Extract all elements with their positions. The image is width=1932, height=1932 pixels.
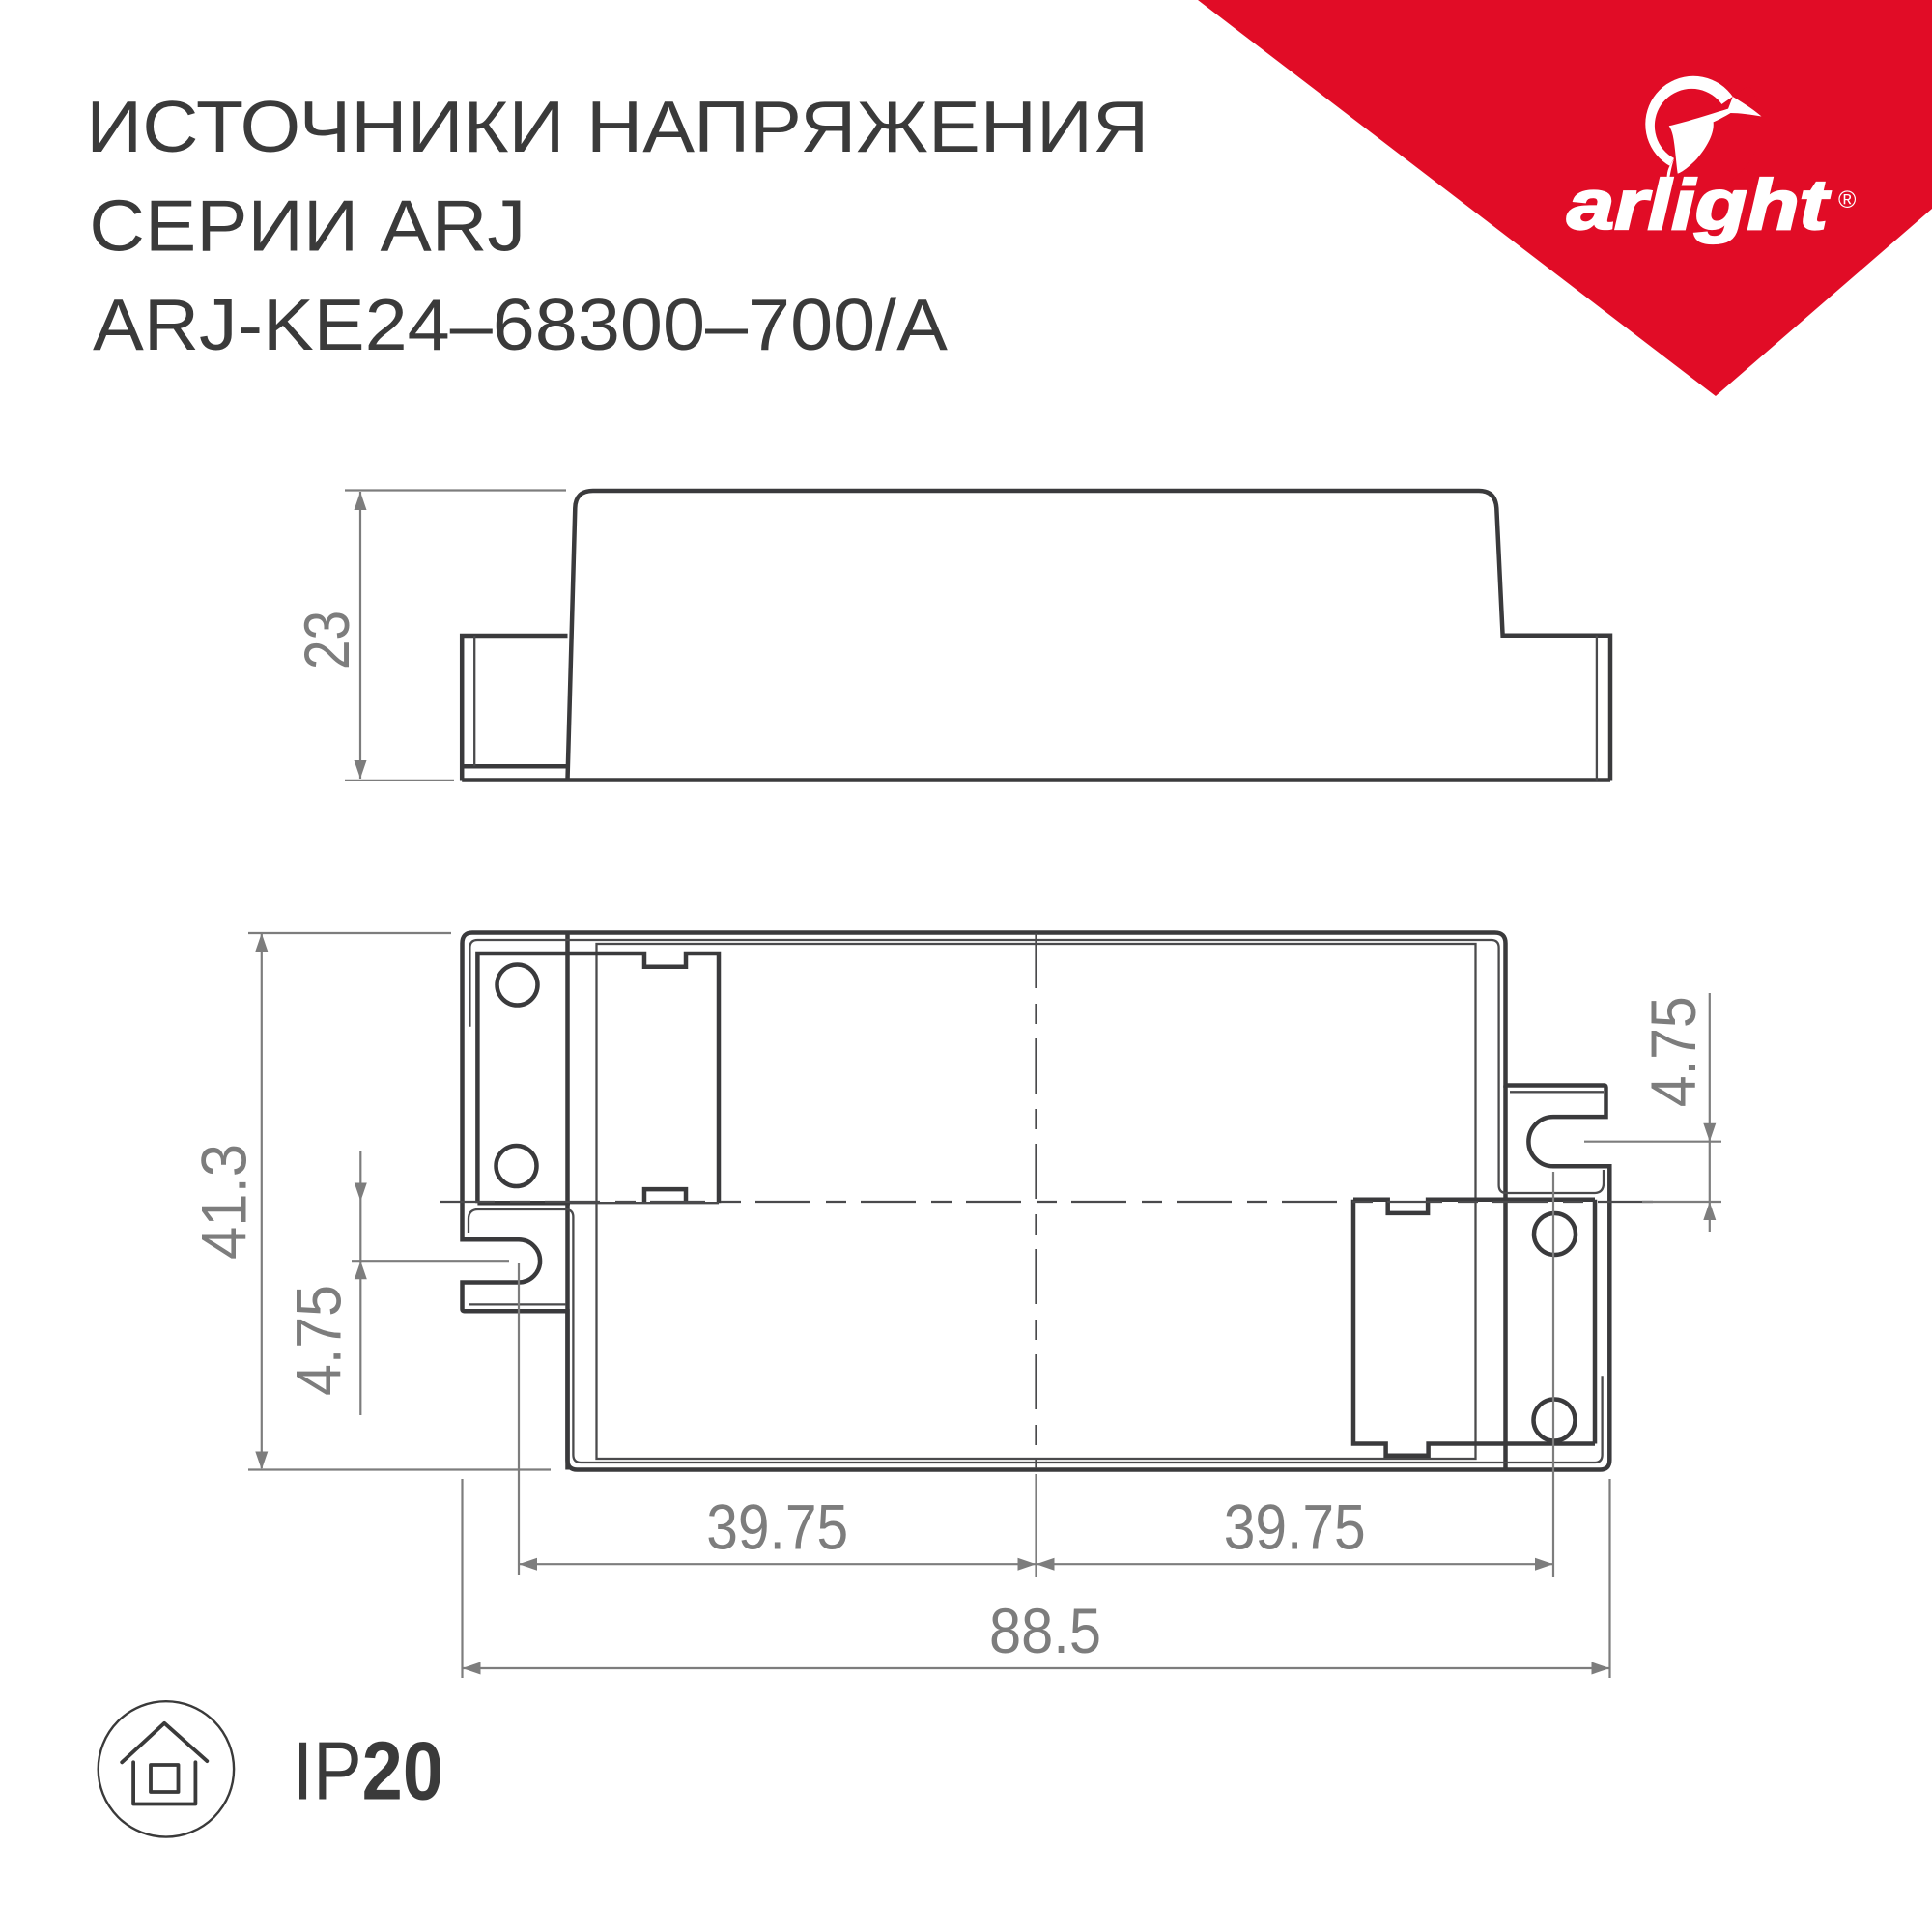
svg-text:88.5: 88.5 xyxy=(989,1595,1101,1666)
svg-text:arlight: arlight xyxy=(1567,166,1831,244)
svg-text:4.75: 4.75 xyxy=(282,1285,354,1396)
svg-text:41.3: 41.3 xyxy=(188,1144,260,1260)
svg-text:39.75: 39.75 xyxy=(706,1492,848,1563)
svg-text:23: 23 xyxy=(291,611,362,669)
svg-text:®: ® xyxy=(1838,186,1857,213)
svg-text:4.75: 4.75 xyxy=(1637,996,1709,1107)
svg-text:СЕРИИ ARJ: СЕРИИ ARJ xyxy=(89,185,526,267)
svg-text:ARJ-KE24–68300–700/А: ARJ-KE24–68300–700/А xyxy=(93,284,948,365)
svg-text:ИСТОЧНИКИ НАПРЯЖЕНИЯ: ИСТОЧНИКИ НАПРЯЖЕНИЯ xyxy=(86,86,1149,167)
svg-text:IP20: IP20 xyxy=(293,1725,443,1817)
svg-text:39.75: 39.75 xyxy=(1224,1492,1366,1563)
